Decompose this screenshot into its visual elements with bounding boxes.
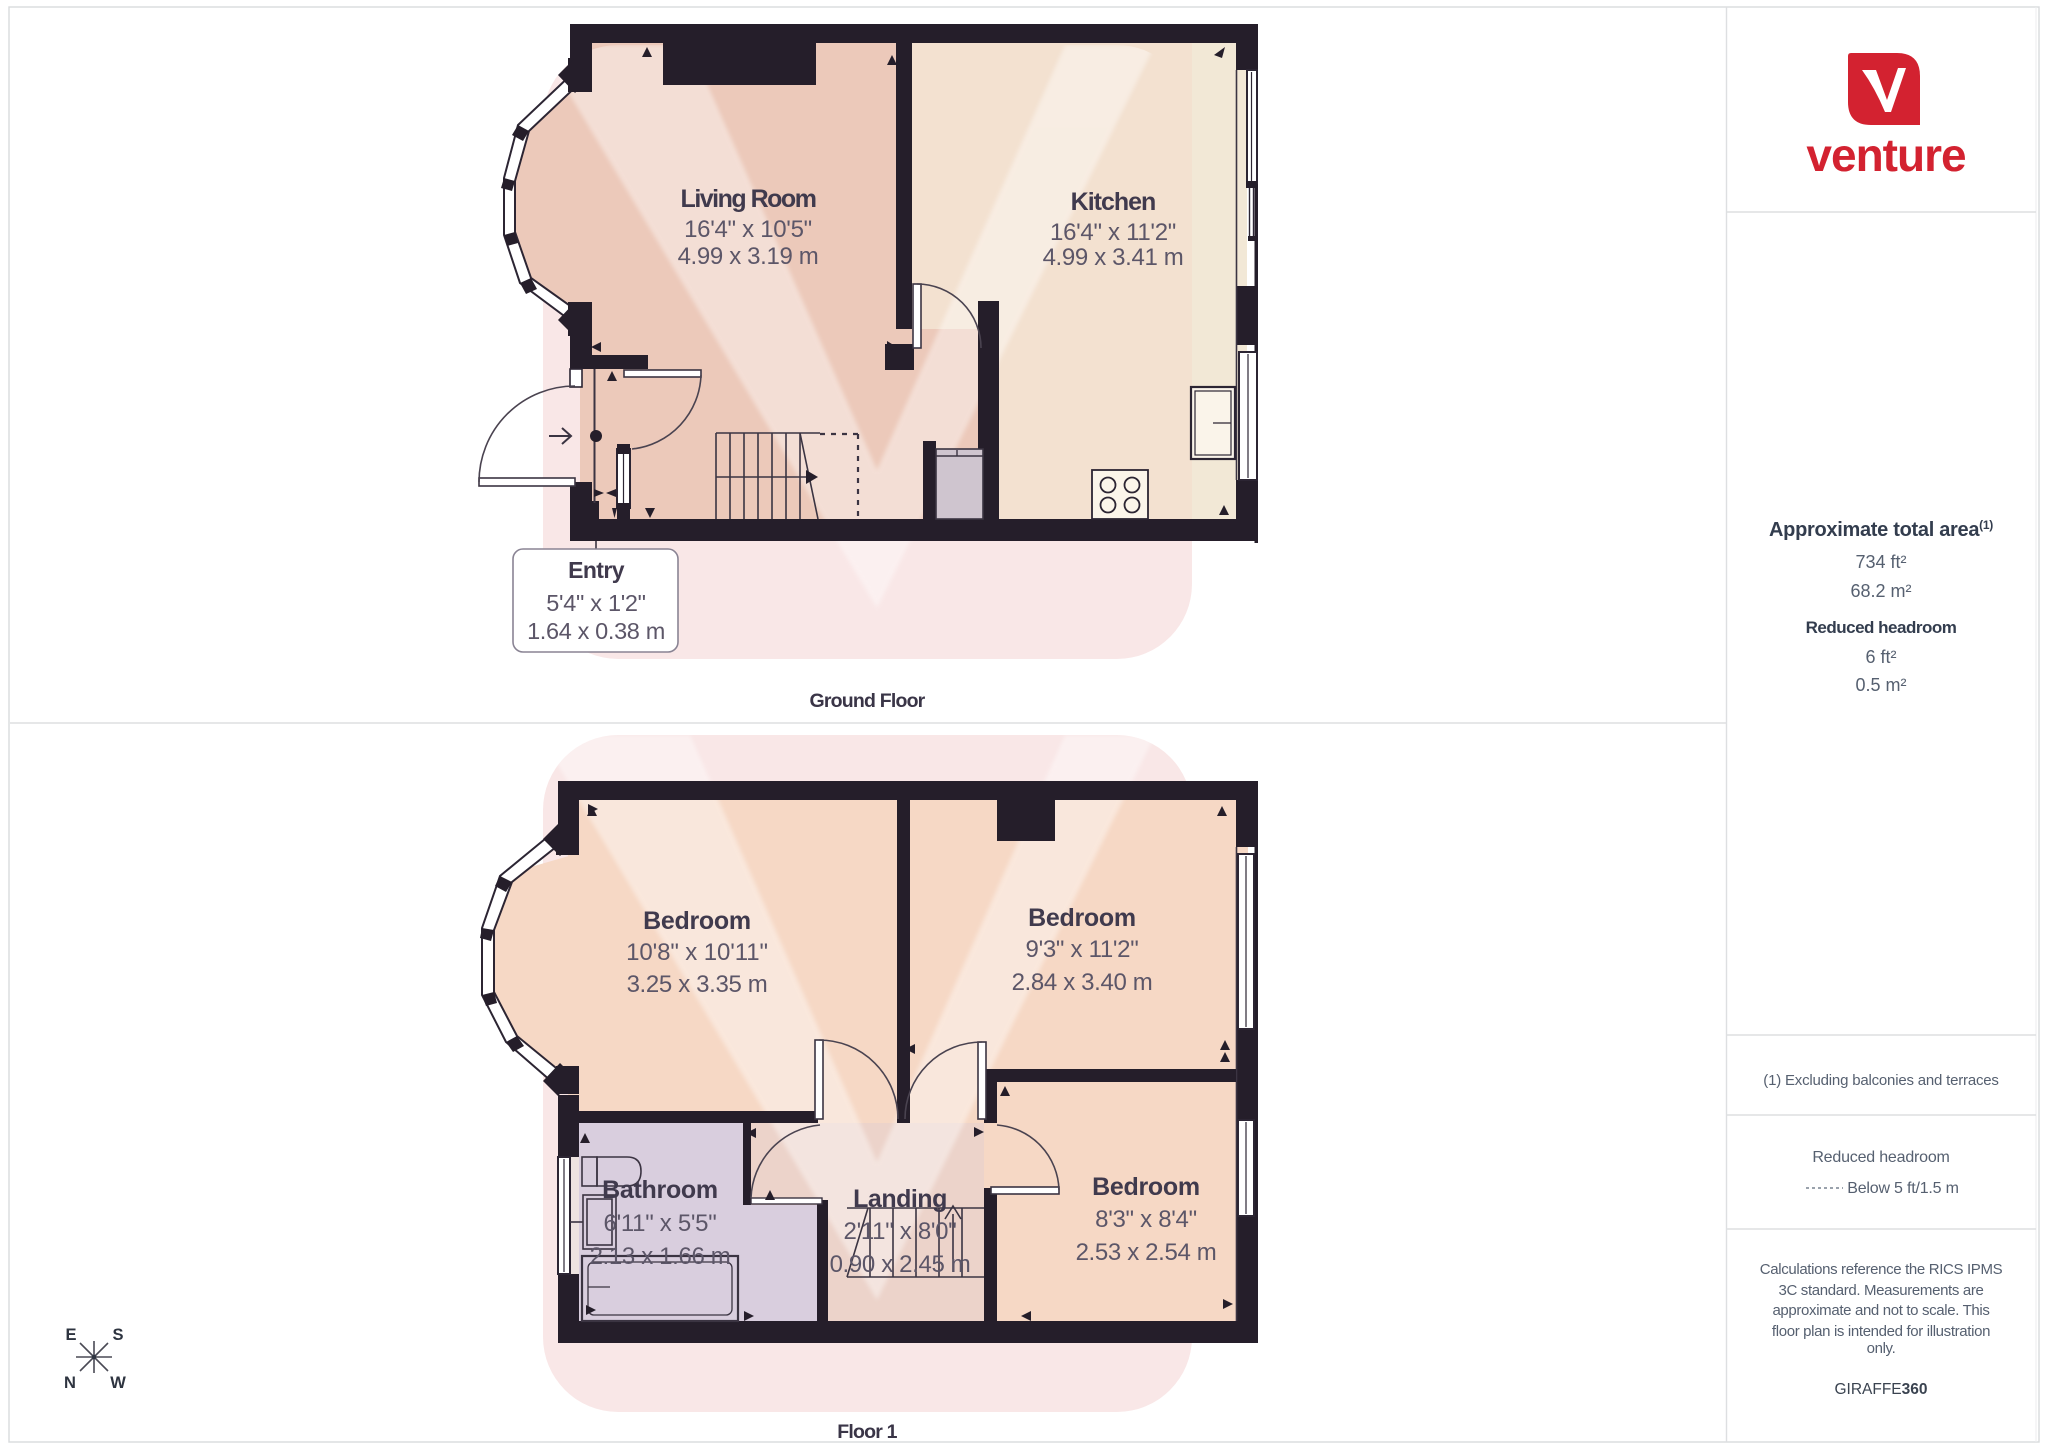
svg-text:Bedroom: Bedroom [1092,1173,1200,1201]
svg-text:S: S [112,1326,123,1344]
svg-text:approximate and not to scale.: approximate and not to scale. This [1772,1302,1989,1319]
svg-text:Living Room: Living Room [681,185,816,213]
svg-text:3C standard. Measurements are: 3C standard. Measurements are [1779,1282,1984,1299]
svg-text:Entry: Entry [568,557,625,583]
svg-text:3.25 x 3.35 m: 3.25 x 3.35 m [627,971,768,998]
svg-text:5'4" x 1'2": 5'4" x 1'2" [546,590,645,616]
svg-text:W: W [110,1374,126,1392]
svg-text:Reduced headroom: Reduced headroom [1812,1149,1949,1166]
svg-text:2.84 x 3.40 m: 2.84 x 3.40 m [1012,969,1153,996]
svg-text:4.99 x 3.19 m: 4.99 x 3.19 m [678,243,819,270]
svg-text:1.64 x 0.38 m: 1.64 x 0.38 m [527,618,665,644]
svg-text:E: E [65,1326,76,1344]
svg-text:0.5 m²: 0.5 m² [1855,675,1906,695]
svg-text:Bedroom: Bedroom [1028,904,1136,932]
svg-text:16'4" x 11'2": 16'4" x 11'2" [1050,219,1176,246]
svg-text:9'3" x 11'2": 9'3" x 11'2" [1026,936,1139,963]
svg-text:Reduced headroom: Reduced headroom [1806,618,1957,637]
svg-text:Calculations reference the RIC: Calculations reference the RICS IPMS [1760,1261,2003,1278]
svg-text:only.: only. [1867,1340,1896,1357]
svg-text:734 ft²: 734 ft² [1855,552,1906,572]
svg-text:10'8" x 10'11": 10'8" x 10'11" [626,939,768,966]
svg-text:2.13 x 1.66 m: 2.13 x 1.66 m [590,1243,731,1270]
svg-text:4.99 x 3.41 m: 4.99 x 3.41 m [1043,244,1184,271]
svg-text:Landing: Landing [853,1185,947,1213]
svg-text:0.90 x 2.45 m: 0.90 x 2.45 m [830,1251,971,1278]
svg-text:2'11" x 8'0": 2'11" x 8'0" [844,1218,957,1245]
svg-text:Approximate total area(1): Approximate total area(1) [1769,518,1993,541]
svg-text:(1) Excluding balconies and te: (1) Excluding balconies and terraces [1763,1072,1998,1089]
svg-text:68.2 m²: 68.2 m² [1850,581,1911,601]
svg-text:Kitchen: Kitchen [1071,188,1156,216]
svg-text:floor plan is intended for ill: floor plan is intended for illustration [1772,1323,1990,1340]
svg-text:Bathroom: Bathroom [602,1176,718,1204]
svg-text:Bedroom: Bedroom [643,907,751,935]
svg-text:GIRAFFE360: GIRAFFE360 [1834,1381,1927,1398]
svg-text:Floor 1: Floor 1 [837,1421,897,1443]
svg-text:Ground Floor: Ground Floor [810,690,926,712]
svg-text:16'4" x 10'5": 16'4" x 10'5" [684,216,812,243]
svg-text:Below 5 ft/1.5 m: Below 5 ft/1.5 m [1847,1180,1959,1197]
svg-text:venture: venture [1806,129,1966,181]
svg-text:6 ft²: 6 ft² [1865,647,1896,667]
svg-text:8'3" x 8'4": 8'3" x 8'4" [1095,1206,1197,1233]
svg-text:2.53 x 2.54 m: 2.53 x 2.54 m [1076,1239,1217,1266]
svg-text:6'11" x 5'5": 6'11" x 5'5" [604,1210,717,1237]
svg-text:N: N [64,1374,76,1392]
